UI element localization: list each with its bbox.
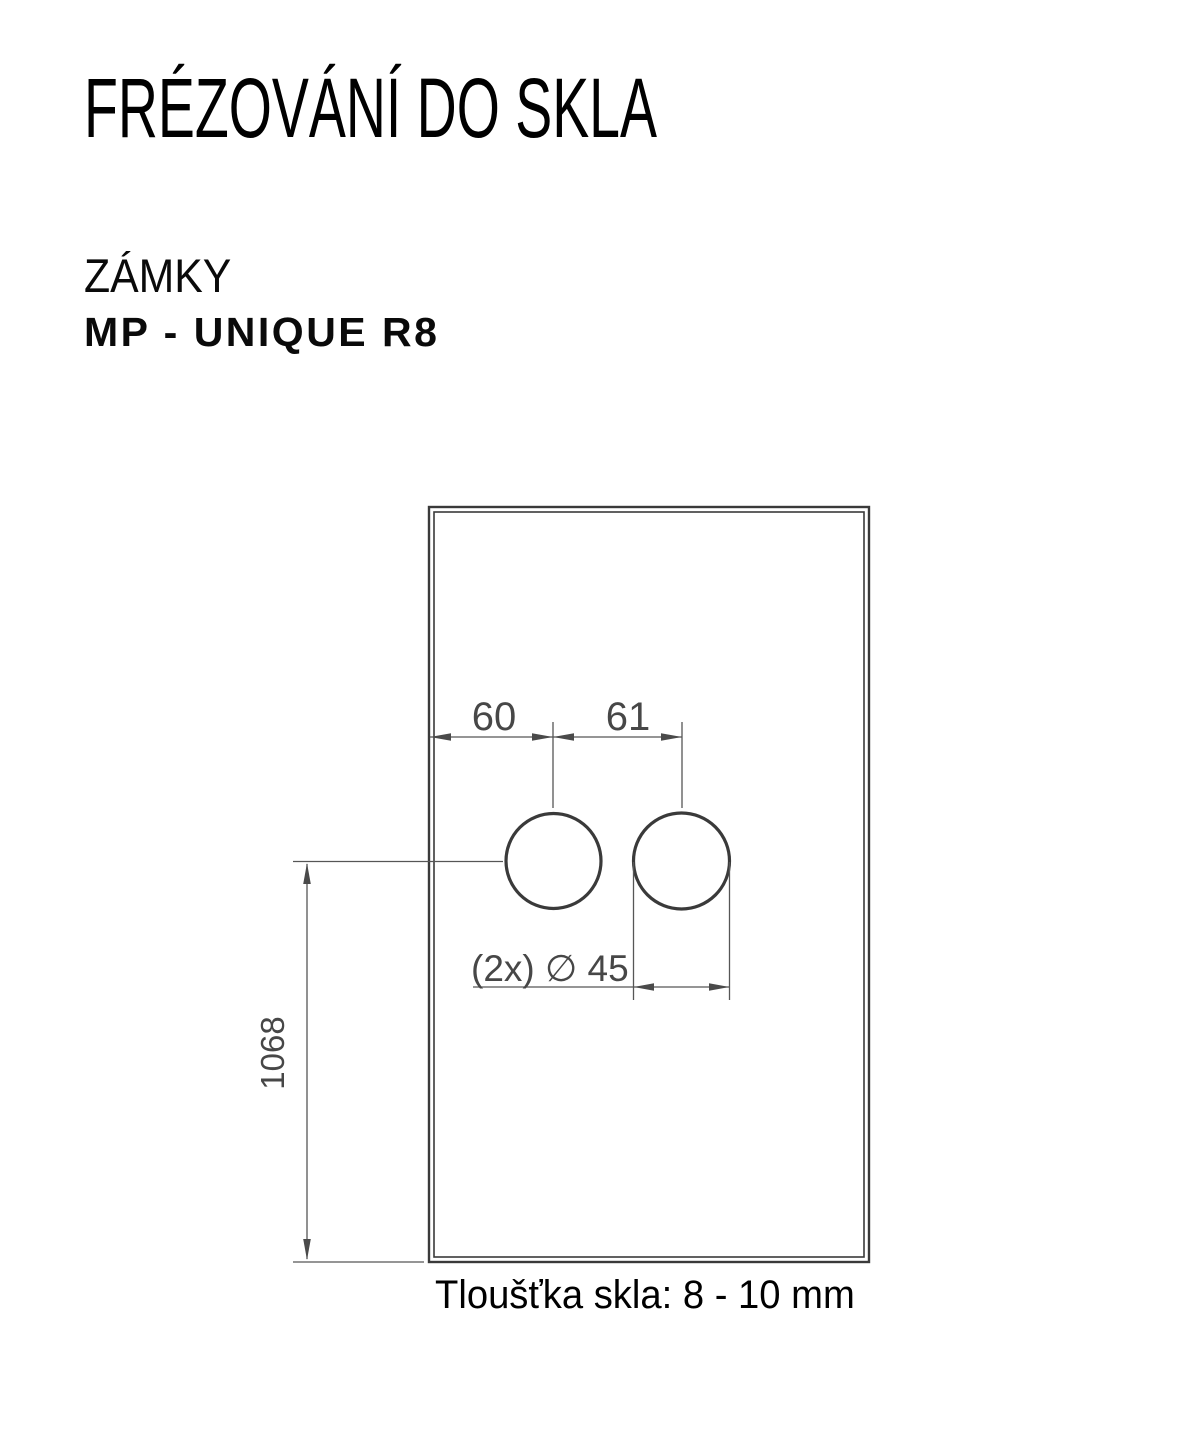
glass-panel-inner-outline xyxy=(434,512,864,1257)
dim-hole-center-distance: 61 xyxy=(606,695,651,739)
arrow-right-icon xyxy=(661,733,682,741)
dim-edge-to-first-hole: 60 xyxy=(472,695,517,739)
hole-right xyxy=(634,813,730,909)
dimension-top-horizontal: 60 61 xyxy=(430,695,682,808)
glass-panel-outer-outline xyxy=(429,507,869,1262)
dimension-height-vertical: 1068 xyxy=(254,862,503,1263)
arrow-up-icon xyxy=(303,863,311,884)
arrow-right-icon xyxy=(532,733,553,741)
arrow-left-icon xyxy=(634,983,655,991)
glass-thickness-caption: Tloušťka skla: 8 - 10 mm xyxy=(435,1271,875,1319)
glass-thickness-text: Tloušťka skla: 8 - 10 mm xyxy=(435,1271,855,1319)
arrow-down-icon xyxy=(303,1239,311,1260)
hole-left xyxy=(506,814,601,909)
glass-milling-drawing: 60 61 (2x) ∅ 45 1068 xyxy=(0,0,1200,1431)
arrow-left-icon xyxy=(553,733,574,741)
dim-hole-diameter: (2x) ∅ 45 xyxy=(471,948,629,989)
arrow-right-icon xyxy=(709,983,730,991)
dim-bottom-to-hole-center: 1068 xyxy=(254,1016,291,1089)
arrow-left-icon xyxy=(430,733,451,741)
